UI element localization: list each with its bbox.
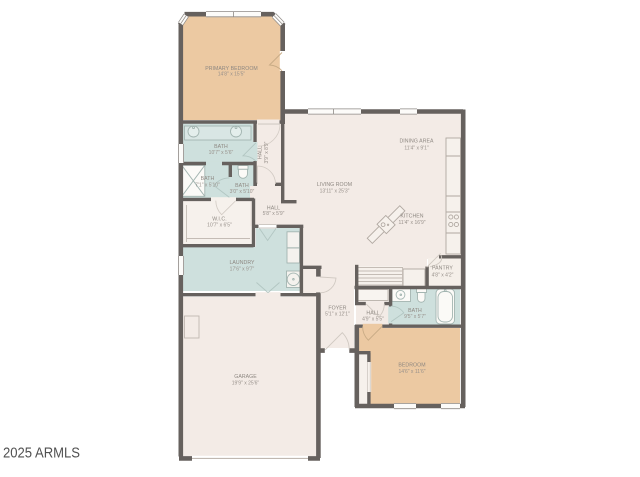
svg-text:PANTRY: PANTRY <box>432 266 453 272</box>
svg-text:BATH: BATH <box>214 144 228 150</box>
svg-text:HALL: HALL <box>258 146 264 159</box>
svg-text:5'8" x 5'9": 5'8" x 5'9" <box>263 211 285 217</box>
svg-text:5'1" x 12'1": 5'1" x 12'1" <box>325 311 350 317</box>
svg-text:11'4" x 9'1": 11'4" x 9'1" <box>404 145 428 151</box>
svg-text:BATH: BATH <box>235 183 249 189</box>
svg-text:17'6" x 9'7": 17'6" x 9'7" <box>230 267 255 273</box>
svg-text:4'9" x 5'5": 4'9" x 5'5" <box>362 316 384 322</box>
svg-text:BEDROOM: BEDROOM <box>398 362 425 368</box>
svg-text:14'8" x 15'5": 14'8" x 15'5" <box>218 72 246 78</box>
svg-text:KITCHEN: KITCHEN <box>400 213 423 219</box>
svg-text:4'8" x 4'2": 4'8" x 4'2" <box>432 272 454 278</box>
svg-text:DINING AREA: DINING AREA <box>399 139 434 145</box>
svg-text:10'7" x 6'5": 10'7" x 6'5" <box>207 222 232 228</box>
svg-text:LAUNDRY: LAUNDRY <box>229 260 255 266</box>
svg-text:10'7" x 5'6": 10'7" x 5'6" <box>209 150 234 156</box>
svg-text:3'0" x 5'10": 3'0" x 5'10" <box>230 189 255 195</box>
svg-text:9'5" x 5'7": 9'5" x 5'7" <box>404 314 426 320</box>
svg-text:BATH: BATH <box>201 176 215 182</box>
svg-text:LIVING ROOM: LIVING ROOM <box>317 182 352 188</box>
svg-text:14'6" x 11'6": 14'6" x 11'6" <box>398 369 425 375</box>
svg-text:11'4" x 16'9": 11'4" x 16'9" <box>398 220 425 226</box>
svg-text:GARAGE: GARAGE <box>234 374 257 380</box>
svg-text:3'9" x 8'9": 3'9" x 8'9" <box>264 141 270 163</box>
svg-text:2025 ARMLS: 2025 ARMLS <box>3 445 80 462</box>
svg-text:7'1" x 5'10": 7'1" x 5'10" <box>195 182 220 188</box>
svg-text:19'9" x 25'6": 19'9" x 25'6" <box>232 380 260 386</box>
svg-text:13'11" x 25'3": 13'11" x 25'3" <box>320 188 350 194</box>
